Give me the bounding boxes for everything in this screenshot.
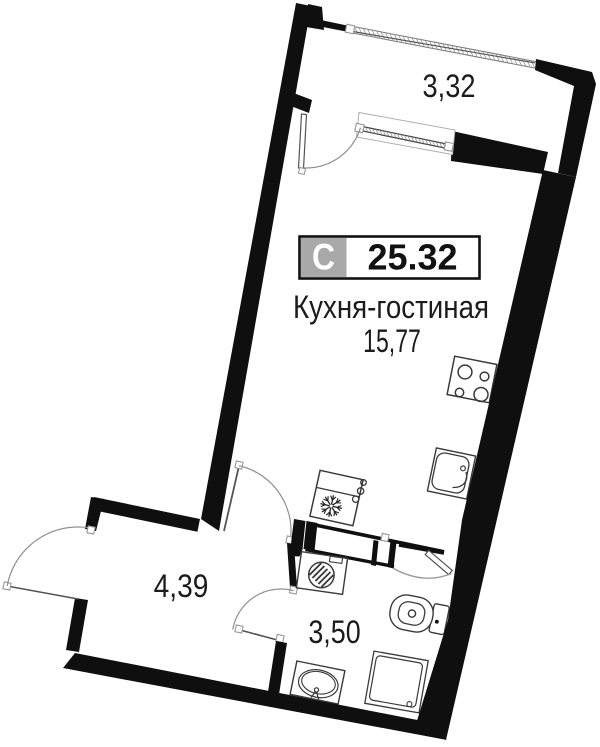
svg-text:15,77: 15,77 xyxy=(363,323,421,359)
svg-text:3,50: 3,50 xyxy=(308,615,360,651)
svg-text:25.32: 25.32 xyxy=(367,237,457,278)
svg-text:Кухня-гостиная: Кухня-гостиная xyxy=(293,290,489,325)
svg-text:3,32: 3,32 xyxy=(423,69,476,105)
svg-text:С: С xyxy=(312,237,335,278)
svg-text:4,39: 4,39 xyxy=(154,569,209,604)
